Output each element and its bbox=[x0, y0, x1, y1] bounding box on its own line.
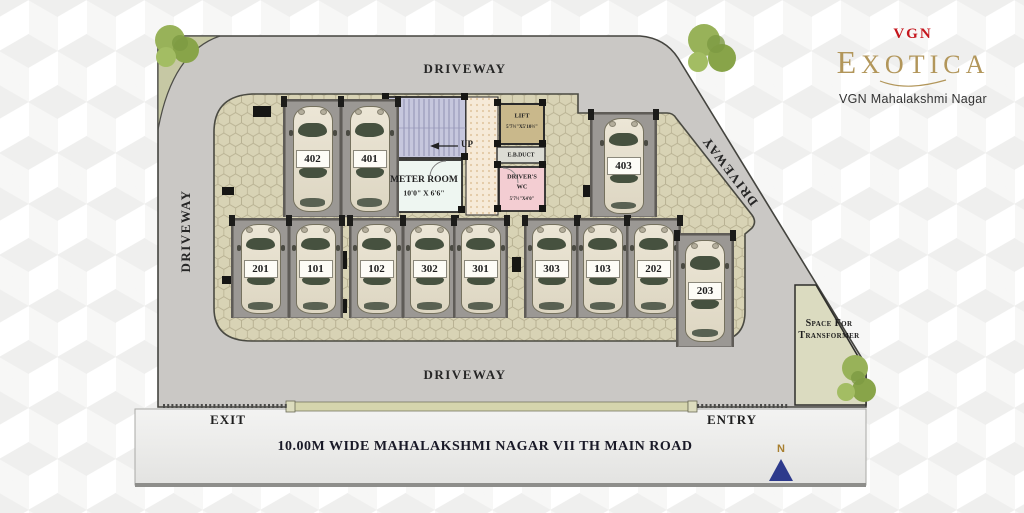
parking-spot-201: 201 bbox=[231, 218, 290, 318]
parking-spot-102: 102 bbox=[349, 218, 404, 318]
parking-spot-number: 203 bbox=[688, 282, 722, 300]
wall-post bbox=[286, 401, 295, 412]
drivers-wc-label-line2: WC bbox=[495, 183, 550, 190]
parking-spot-number: 302 bbox=[413, 260, 447, 278]
meter-room-label: METER ROOM bbox=[379, 175, 469, 185]
parking-spot-number: 301 bbox=[464, 260, 498, 278]
driveway-label-left: DRIVEWAY bbox=[178, 166, 194, 296]
car-icon: 401 bbox=[350, 106, 390, 212]
parking-spot-number: 201 bbox=[244, 260, 278, 278]
parking-spot-number: 101 bbox=[299, 260, 333, 278]
stair-up-label: UP bbox=[452, 139, 482, 149]
tree-icon bbox=[688, 24, 736, 72]
car-icon: 302 bbox=[410, 224, 450, 314]
parking-spot-number: 202 bbox=[637, 260, 671, 278]
lift-dims: 5'7½"X5'10½" bbox=[500, 124, 543, 130]
transformer-label-line1: Space For bbox=[789, 318, 869, 331]
car-icon: 303 bbox=[532, 224, 572, 314]
meter-room-dims: 10'0" X 6'6" bbox=[386, 189, 463, 198]
parking-spot-302: 302 bbox=[402, 218, 457, 318]
driveway-label-top: DRIVEWAY bbox=[400, 61, 530, 77]
parking-spot-101: 101 bbox=[288, 218, 343, 318]
entry-label: ENTRY bbox=[697, 412, 767, 428]
logo-brand: VGN bbox=[822, 26, 1004, 43]
compound-wall bbox=[292, 402, 688, 411]
parking-spot-number: 401 bbox=[353, 150, 387, 168]
parking-spot-number: 102 bbox=[360, 260, 394, 278]
car-icon: 202 bbox=[634, 224, 674, 314]
parking-spot-number: 103 bbox=[586, 260, 620, 278]
wall-post bbox=[688, 401, 697, 412]
car-icon: 402 bbox=[293, 106, 333, 212]
car-icon: 203 bbox=[685, 240, 725, 342]
road-edge-line bbox=[135, 483, 866, 487]
exit-label: EXIT bbox=[193, 412, 263, 428]
car-icon: 201 bbox=[241, 224, 281, 314]
eb-duct-label: E.B.DUCT bbox=[496, 151, 546, 157]
parking-spot-303: 303 bbox=[524, 218, 579, 318]
drivers-wc-dims: 5'7½"X4'0" bbox=[501, 196, 543, 201]
parking-spot-202: 202 bbox=[626, 218, 681, 318]
parking-spot-number: 403 bbox=[607, 157, 641, 175]
logo: VGN EXOTICA VGN Mahalakshmi Nagar bbox=[822, 26, 1004, 106]
lift-label: LIFT bbox=[498, 112, 546, 119]
corridor bbox=[466, 97, 498, 215]
parking-spot-203: 203 bbox=[676, 233, 734, 347]
parking-spot-403: 403 bbox=[590, 112, 657, 217]
car-icon: 103 bbox=[583, 224, 623, 314]
site-plan-canvas: 402 401 403 201 bbox=[0, 0, 1024, 513]
parking-spot-number: 402 bbox=[296, 150, 330, 168]
main-road-label: 10.00M WIDE MAHALAKSHMI NAGAR VII TH MAI… bbox=[135, 439, 835, 455]
logo-tagline: VGN Mahalakshmi Nagar bbox=[822, 92, 1004, 106]
car-icon: 403 bbox=[604, 118, 644, 214]
car-icon: 101 bbox=[296, 224, 336, 314]
parking-spot-number: 303 bbox=[535, 260, 569, 278]
car-icon: 301 bbox=[461, 224, 501, 314]
car-icon: 102 bbox=[357, 224, 397, 314]
parking-spot-401: 401 bbox=[340, 99, 399, 217]
parking-spot-301: 301 bbox=[453, 218, 508, 318]
transformer-label-line2: Transformer bbox=[789, 330, 869, 343]
driveway-label-bottom: DRIVEWAY bbox=[400, 367, 530, 383]
compass-north-label: N bbox=[769, 443, 793, 455]
parking-spot-103: 103 bbox=[576, 218, 629, 318]
drivers-wc-label-line1: DRIVER'S bbox=[495, 173, 550, 180]
parking-spot-402: 402 bbox=[283, 99, 342, 217]
logo-name: EXOTICA bbox=[822, 44, 1004, 81]
